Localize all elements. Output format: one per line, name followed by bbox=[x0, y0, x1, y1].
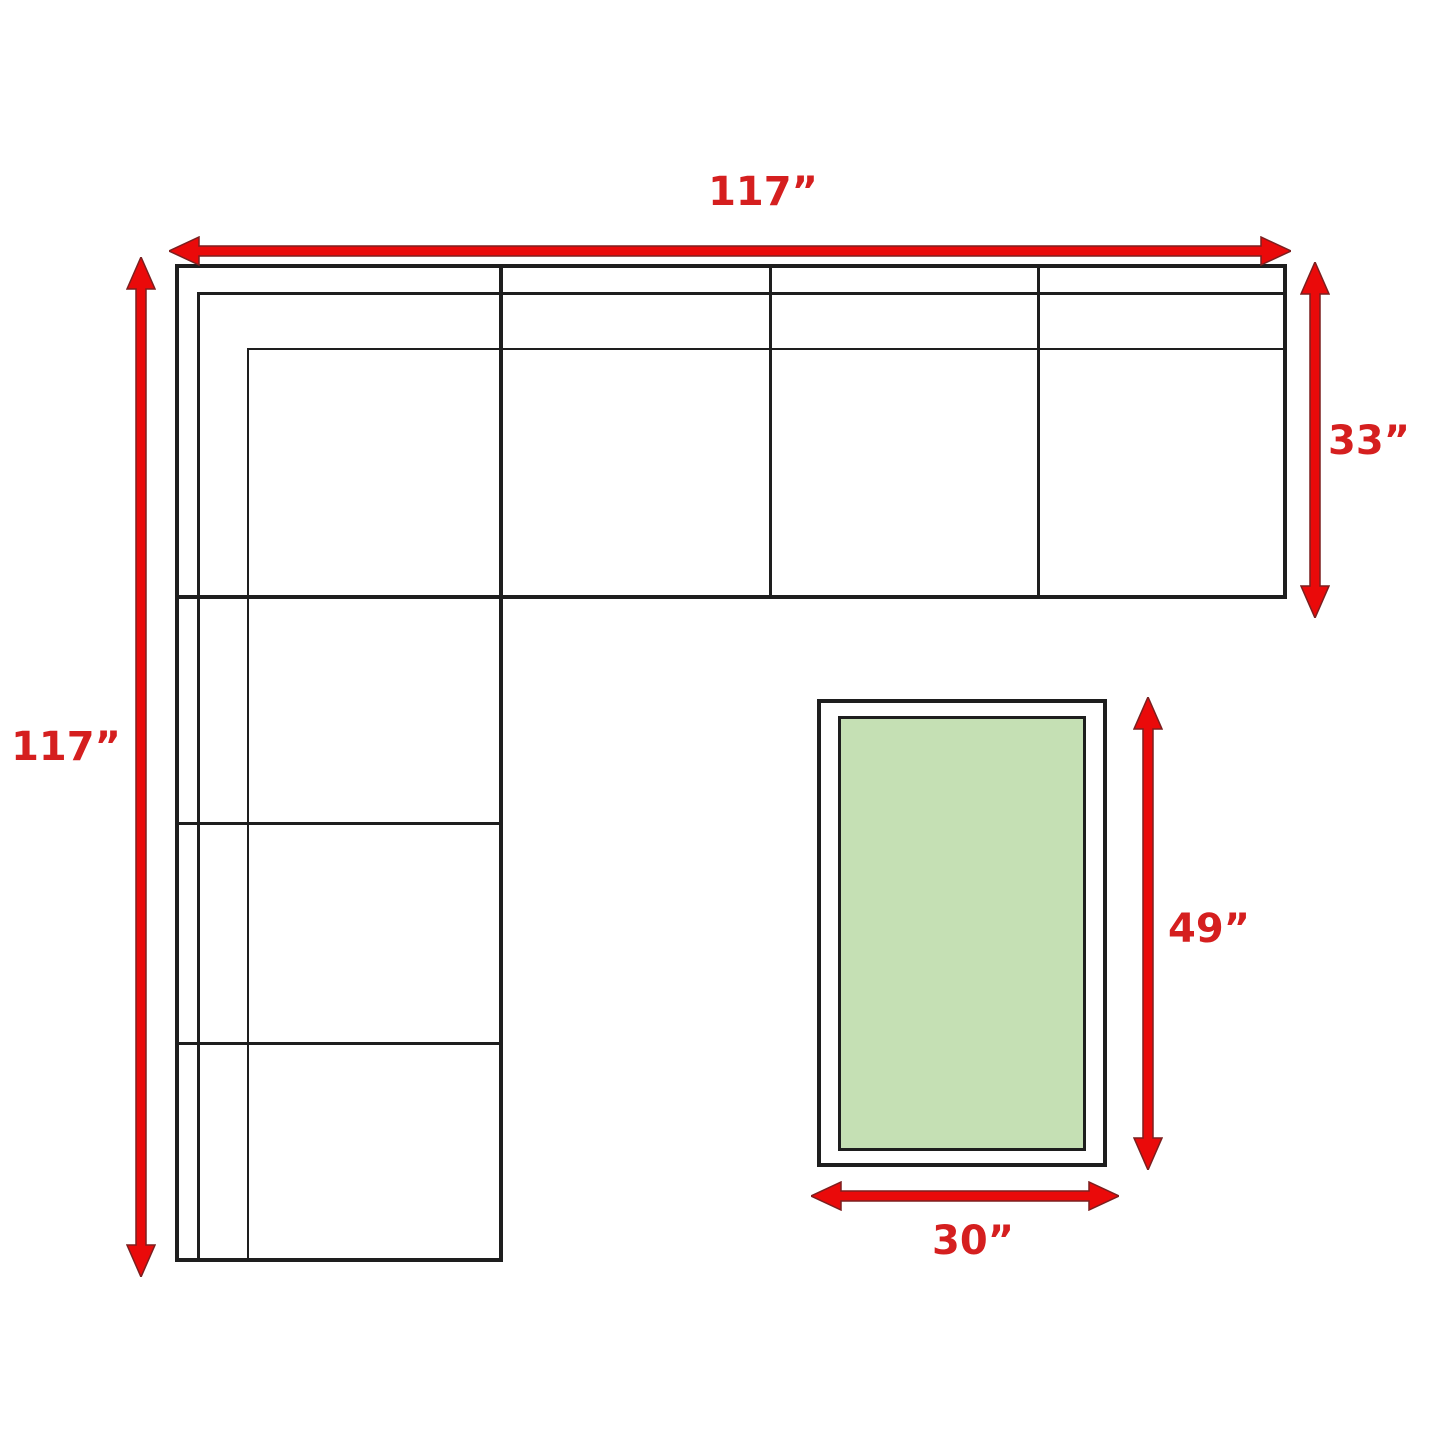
sofa-seat-side-line bbox=[247, 348, 249, 1260]
dim-arrow-section-depth bbox=[1300, 262, 1330, 618]
sofa-back-inner-line bbox=[197, 292, 1287, 295]
sofa-left-column-divider-1 bbox=[175, 822, 503, 825]
sofa-top-row-bottom-edge bbox=[175, 595, 1287, 599]
dim-label-section-depth: 33” bbox=[1328, 418, 1410, 464]
double-arrow-shape bbox=[811, 1182, 1119, 1210]
dim-arrow-table-length bbox=[1133, 697, 1163, 1170]
sofa-bottom-edge bbox=[175, 1258, 503, 1262]
sofa-arm-inner-line bbox=[197, 292, 200, 1262]
dim-label-sofa-width: 117” bbox=[708, 169, 818, 215]
sofa-left-edge bbox=[175, 264, 179, 1262]
double-arrow-shape bbox=[169, 237, 1291, 265]
sofa-left-column-right-edge bbox=[499, 264, 503, 1262]
dim-label-sofa-length: 117” bbox=[11, 724, 121, 770]
dim-label-table-width: 30” bbox=[932, 1218, 1014, 1264]
sofa-left-column-divider-2 bbox=[175, 1042, 503, 1045]
coffee-table-top bbox=[838, 716, 1086, 1151]
dim-arrow-table-width bbox=[811, 1181, 1119, 1211]
sofa-top-row-divider-3 bbox=[1037, 264, 1040, 599]
dim-arrow-sofa-width bbox=[169, 236, 1291, 266]
sofa-top-row-divider-2 bbox=[769, 264, 772, 599]
dim-label-table-length: 49” bbox=[1168, 906, 1250, 952]
floor-plan-canvas: 117” 117” 33” 49” 30” bbox=[0, 0, 1445, 1445]
sofa-right-edge bbox=[1283, 264, 1287, 599]
dim-arrow-sofa-length bbox=[126, 257, 156, 1277]
sofa-seat-back-line bbox=[247, 348, 1287, 350]
double-arrow-shape bbox=[1301, 262, 1329, 618]
double-arrow-shape bbox=[1134, 697, 1162, 1170]
double-arrow-shape bbox=[127, 257, 155, 1277]
